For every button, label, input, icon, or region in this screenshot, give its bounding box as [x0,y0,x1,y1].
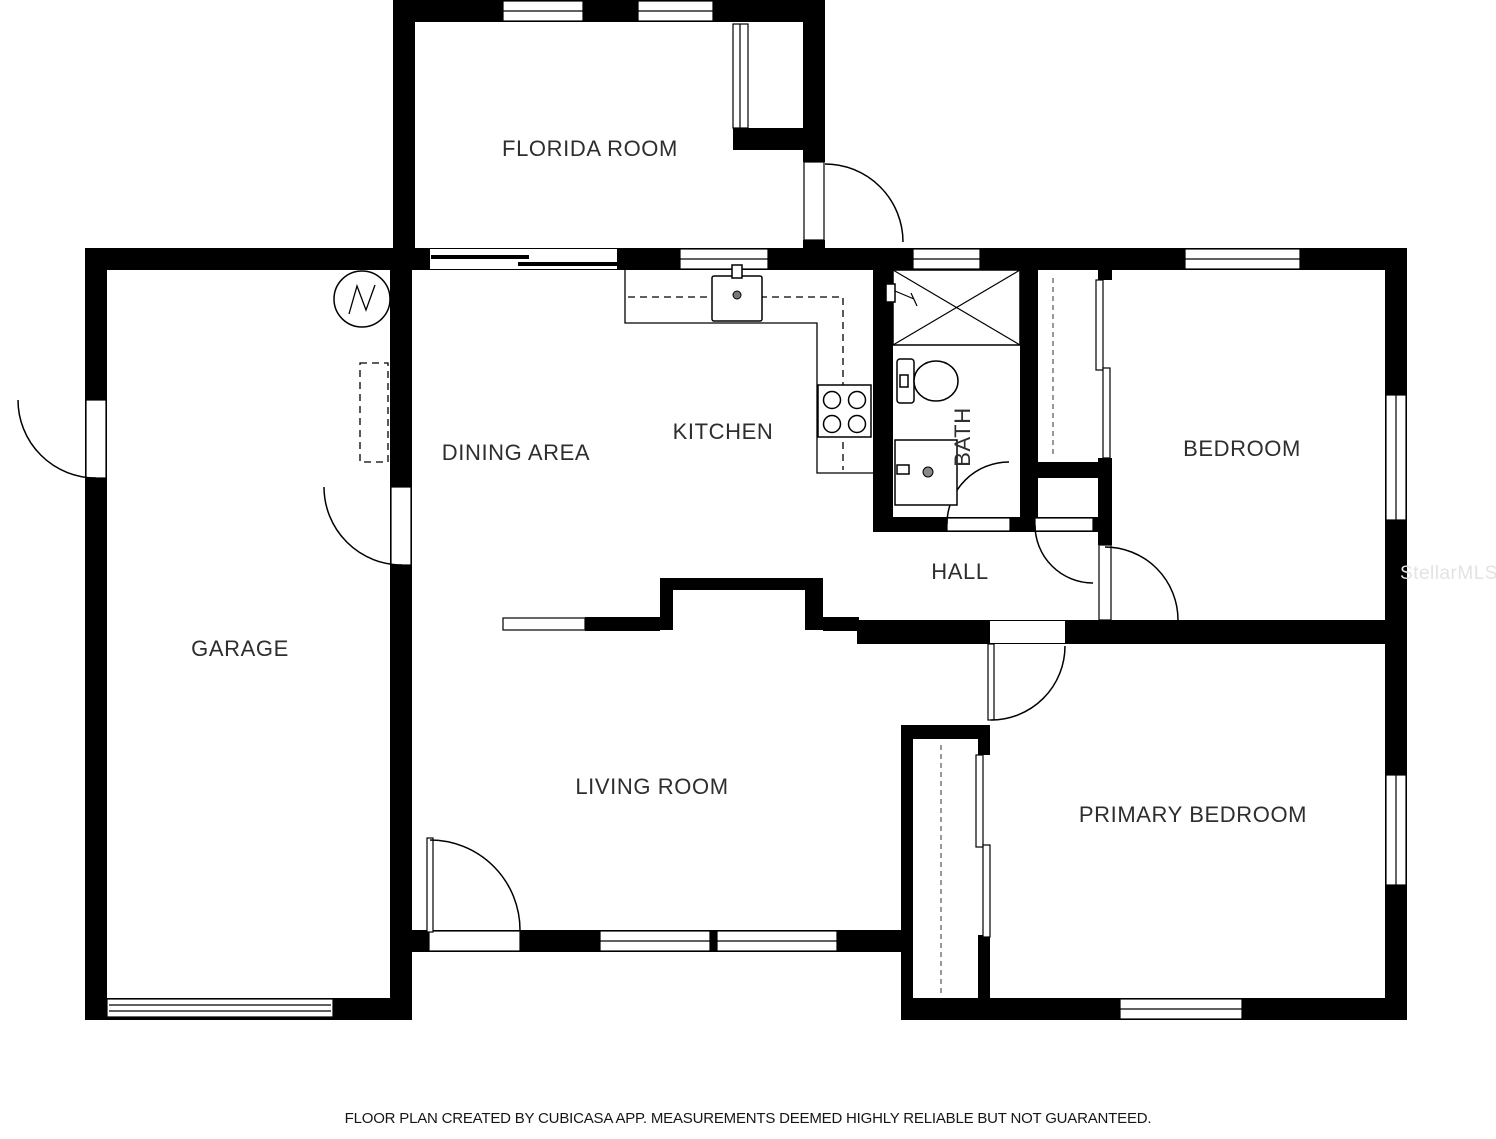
room-label-florida-room: FLORIDA ROOM [502,136,678,161]
room-label-hall: HALL [931,559,988,584]
door-primary-bedroom [988,621,1065,720]
floor-plan-page: FLORIDA ROOM DINING AREA KITCHEN BATH BE… [0,0,1496,1139]
fireplace-niche [660,578,823,630]
window-living-2 [717,931,837,951]
appliance-dashed-outline [360,363,388,462]
sliding-closet-primary [976,755,990,937]
room-label-bedroom: BEDROOM [1183,436,1301,461]
window-primary-east [1386,775,1406,885]
window-bedroom-top [1185,249,1300,269]
window-bath [913,249,980,269]
sliding-door-florida [430,249,617,269]
door-garage-dining [324,487,411,565]
window-florida-box [733,24,748,128]
toilet [897,359,958,403]
half-wall [503,618,585,630]
door-front-entry [427,838,520,951]
room-label-dining-area: DINING AREA [442,440,590,465]
window-kitchen [680,249,768,269]
door-florida-exterior [804,162,903,242]
room-label-living-room: LIVING ROOM [575,774,728,799]
room-labels: FLORIDA ROOM DINING AREA KITCHEN BATH BE… [191,136,1307,827]
kitchen-sink [712,265,762,321]
water-heater-symbol [334,271,390,327]
window-bedroom-east [1386,395,1406,520]
window-florida-2 [638,1,713,21]
shower [886,270,1020,345]
room-label-garage: GARAGE [191,636,289,661]
room-label-bath: BATH [950,407,975,466]
sliding-closet-bedroom [1096,280,1110,458]
window-living-1 [600,931,710,951]
walls [85,0,1407,1020]
room-label-kitchen: KITCHEN [673,419,774,444]
garage-overhead-door [107,999,333,1017]
floor-plan-canvas: FLORIDA ROOM DINING AREA KITCHEN BATH BE… [0,0,1496,1139]
door-bedroom [1099,545,1178,620]
disclaimer-text: FLOOR PLAN CREATED BY CUBICASA APP. MEAS… [345,1110,1152,1127]
room-label-primary-bedroom: PRIMARY BEDROOM [1079,802,1307,827]
door-linen-closet [1035,518,1093,583]
window-florida-1 [503,1,583,21]
window-primary-south [1120,999,1242,1019]
stellar-mls-watermark: StellarMLS [1400,563,1496,584]
door-garage-exterior [18,400,106,478]
vanity-sink [895,440,957,505]
kitchen-stove [818,385,871,437]
